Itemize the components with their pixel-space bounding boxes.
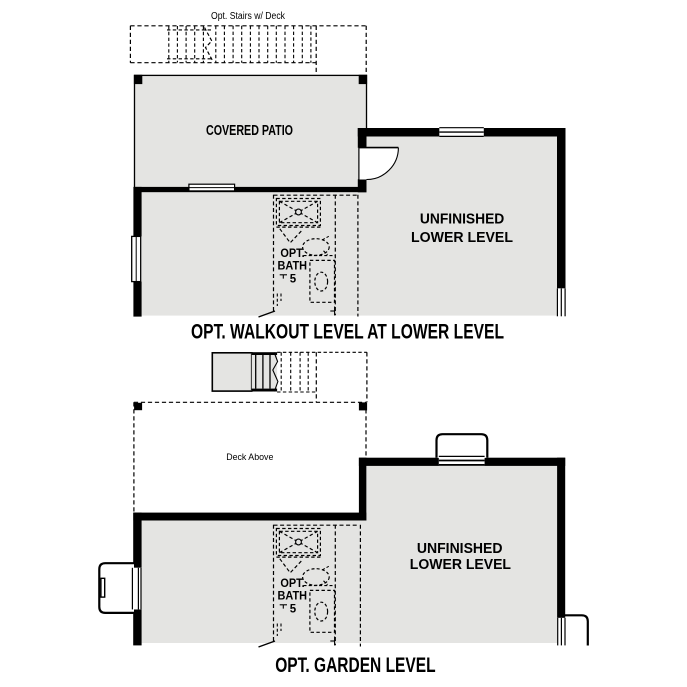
svg-text:LOWER LEVEL: LOWER LEVEL bbox=[411, 229, 513, 246]
svg-text:OPT. WALKOUT LEVEL AT LOWER LE: OPT. WALKOUT LEVEL AT LOWER LEVEL bbox=[191, 321, 504, 344]
svg-text:UNFINISHED: UNFINISHED bbox=[420, 211, 504, 228]
svg-text:UNFINISHED: UNFINISHED bbox=[417, 540, 503, 557]
svg-text:Deck Above: Deck Above bbox=[226, 452, 273, 462]
svg-text:OPT. GARDEN LEVEL: OPT. GARDEN LEVEL bbox=[275, 654, 436, 677]
svg-text:LOWER LEVEL: LOWER LEVEL bbox=[410, 556, 511, 573]
svg-text:Opt. Stairs w/ Deck: Opt. Stairs w/ Deck bbox=[211, 11, 286, 22]
svg-text:COVERED PATIO: COVERED PATIO bbox=[206, 122, 293, 139]
